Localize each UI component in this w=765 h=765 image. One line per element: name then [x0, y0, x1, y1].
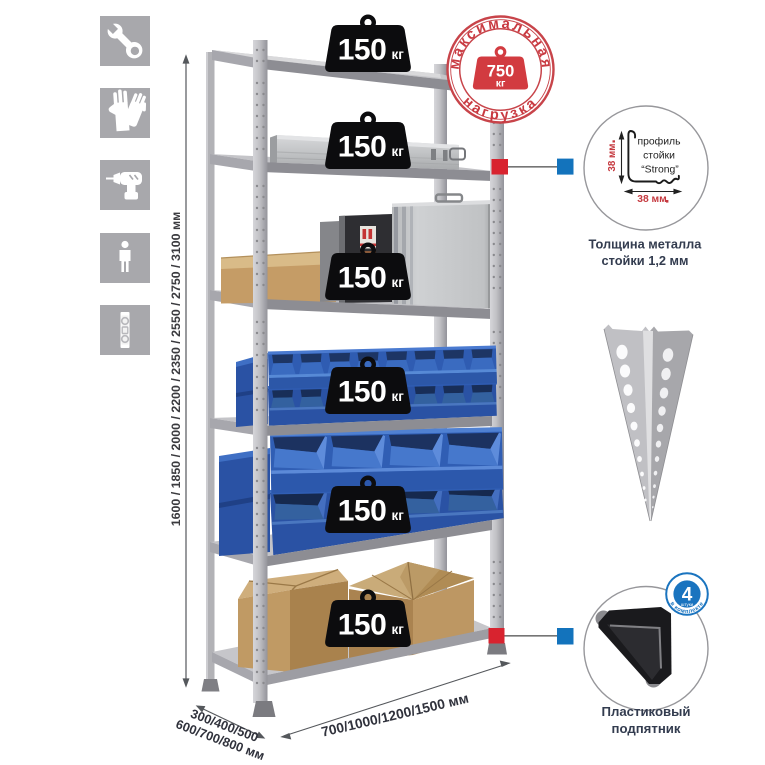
svg-text:38 мм: 38 мм — [607, 143, 618, 171]
svg-text:кг: кг — [496, 78, 506, 90]
svg-text:1600 / 1850 / 2000 / 2200 / 23: 1600 / 1850 / 2000 / 2200 / 2350 / 2550 … — [169, 212, 183, 527]
svg-text:“Strong”: “Strong” — [641, 165, 679, 176]
svg-text:Толщина металла: Толщина металла — [589, 237, 703, 252]
svg-text:Пластиковый: Пластиковый — [601, 704, 690, 719]
svg-text:стойки: стойки — [643, 151, 675, 162]
svg-text:стойки 1,2 мм: стойки 1,2 мм — [601, 253, 688, 268]
svg-text:профиль: профиль — [637, 136, 680, 148]
svg-text:38 мм: 38 мм — [637, 194, 667, 205]
svg-text:подпятник: подпятник — [611, 721, 680, 736]
svg-text:штуки: штуки — [681, 602, 694, 607]
